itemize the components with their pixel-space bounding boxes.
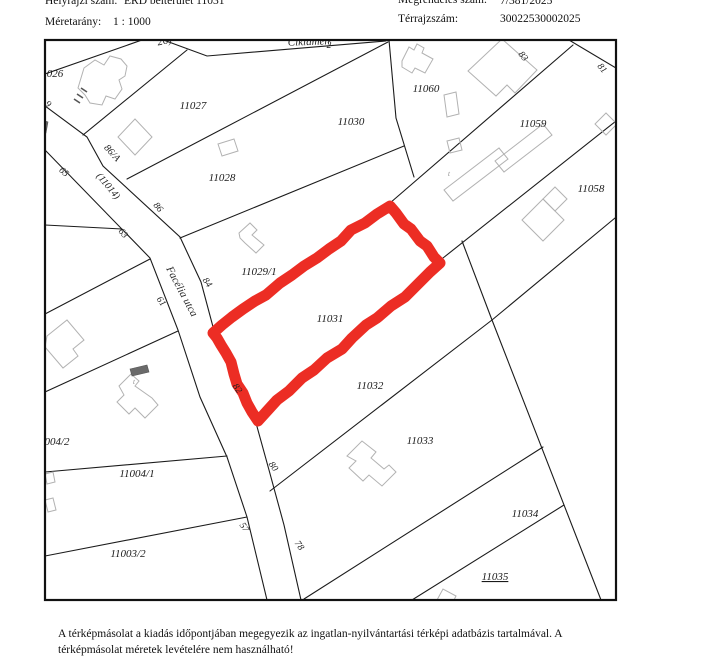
map-label-11031: 11031 bbox=[317, 313, 344, 325]
disclaimer-line2: térképmásolat méretek levételére nem has… bbox=[58, 642, 294, 658]
map-label-86A: 86/A bbox=[101, 143, 122, 165]
scale-value: 1 : 1000 bbox=[113, 16, 151, 29]
map-label-11028: 11028 bbox=[209, 172, 236, 184]
map-label-11059: 11059 bbox=[520, 118, 547, 130]
map-label-11035: 11035 bbox=[482, 571, 509, 583]
map-label-11058: 11058 bbox=[578, 183, 605, 195]
map-label-t: t bbox=[448, 170, 451, 178]
map-label-80: 80 bbox=[266, 460, 280, 474]
map-label-11032: 11032 bbox=[357, 380, 384, 392]
road-facelia-utca bbox=[45, 106, 301, 600]
map-label-026: 026 bbox=[47, 68, 64, 80]
scale-label: Méretarány: bbox=[45, 16, 101, 29]
parcel-id-label: Helyrajzi szám: bbox=[45, 0, 117, 8]
map-label-11030: 11030 bbox=[338, 116, 365, 128]
sheet-number-value: 30022530002025 bbox=[500, 13, 581, 26]
map-labels: 026110271102811029/111030110601105911058… bbox=[42, 34, 608, 583]
order-number-label: Megrendelés szám: bbox=[398, 0, 487, 7]
map-label-65: 65 bbox=[56, 166, 70, 180]
sheet-number-label: Térrajzszám: bbox=[398, 13, 458, 26]
map-label-Facliautca: Facélia utca bbox=[163, 263, 200, 319]
hatched-annex bbox=[130, 365, 149, 376]
map-label-78: 78 bbox=[292, 539, 306, 553]
cadastral-map: 026110271102811029/111030110601105911058… bbox=[0, 0, 710, 661]
map-label-0042: 004/2 bbox=[44, 436, 70, 448]
map-label-110041: 11004/1 bbox=[119, 468, 154, 480]
map-label-11027: 11027 bbox=[180, 100, 207, 112]
map-label-11060: 11060 bbox=[413, 83, 440, 95]
map-label-86: 86 bbox=[151, 201, 165, 215]
map-label-110032: 11003/2 bbox=[110, 548, 146, 560]
map-label-110291: 11029/1 bbox=[241, 266, 276, 278]
map-label-81: 81 bbox=[595, 62, 609, 76]
disclaimer-line1: A térképmásolat a kiadás időpontjában me… bbox=[58, 626, 563, 642]
map-label-11034: 11034 bbox=[512, 508, 539, 520]
parcel-id-value: ÉRD belterület 11031 bbox=[124, 0, 225, 8]
order-number-value: 7/381/2025 bbox=[500, 0, 552, 8]
map-label-Ciklmen: Ciklámen bbox=[288, 35, 331, 48]
map-label-11033: 11033 bbox=[407, 435, 434, 447]
map-label-84: 84 bbox=[200, 276, 214, 290]
cadastral-map-document: Helyrajzi szám: ÉRD belterület 11031 Mér… bbox=[0, 0, 710, 661]
map-label-11014: (11014) bbox=[94, 171, 123, 202]
